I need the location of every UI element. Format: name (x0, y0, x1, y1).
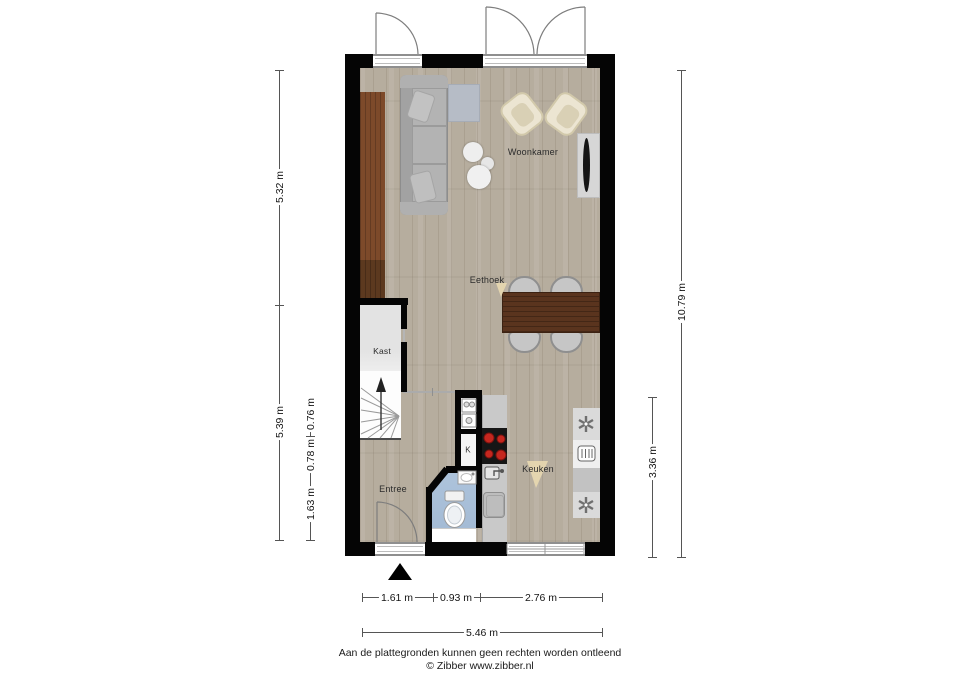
footer-copyright: © Zibber www.zibber.nl (0, 660, 960, 672)
front-door-swing (377, 502, 417, 542)
niche-appliance-icons (462, 399, 476, 427)
dim-label-2-76: 2.76 m (523, 592, 559, 604)
toilet-icon (444, 491, 465, 528)
dim-label-0-76: 0.76 m (305, 396, 317, 432)
floorplan-canvas: Woonkamer Eethoek Kast Entree K Keuken 5… (0, 0, 960, 679)
door-swing-top-double (486, 7, 585, 54)
tv-icon (583, 138, 590, 192)
appliance-star-icon-bottom (579, 497, 593, 513)
label-flag-eethoek (496, 283, 507, 297)
room-label-woonkamer: Woonkamer (508, 147, 558, 157)
bathroom-diagonal-wall (429, 469, 447, 491)
dim-label-0-78: 0.78 m (305, 437, 317, 473)
dim-label-1-63: 1.63 m (305, 486, 317, 522)
cooktop-burners-icon (484, 433, 506, 460)
dim-label-1-61: 1.61 m (379, 592, 415, 604)
entrance-marker-icon (388, 563, 412, 580)
room-label-entree: Entree (379, 484, 407, 494)
stairs-treads (361, 388, 399, 438)
dim-label-5-39: 5.39 m (274, 404, 286, 440)
dim-label-5-32: 5.32 m (274, 169, 286, 205)
stairs-direction-arrow-icon (376, 377, 386, 430)
dim-label-5-46: 5.46 m (464, 627, 500, 639)
dim-label-0-93: 0.93 m (438, 592, 474, 604)
vector-overlay (0, 0, 960, 679)
dim-label-10-79: 10.79 m (676, 281, 688, 323)
kitchen-window-mullions (507, 544, 585, 554)
room-label-kast: Kast (373, 346, 391, 356)
oven-icon (578, 446, 595, 461)
door-swing-top-left (376, 13, 418, 54)
room-label-eethoek: Eethoek (470, 275, 504, 285)
footer-disclaimer: Aan de plattegronden kunnen geen rechten… (0, 647, 960, 659)
room-label-meterkast: K (465, 446, 471, 455)
room-label-keuken: Keuken (522, 464, 554, 474)
dim-label-3-36: 3.36 m (647, 444, 659, 480)
bathroom-sink-icon (458, 471, 476, 484)
kitchen-sink-icon (485, 467, 504, 479)
appliance-star-icon-top (579, 416, 593, 432)
